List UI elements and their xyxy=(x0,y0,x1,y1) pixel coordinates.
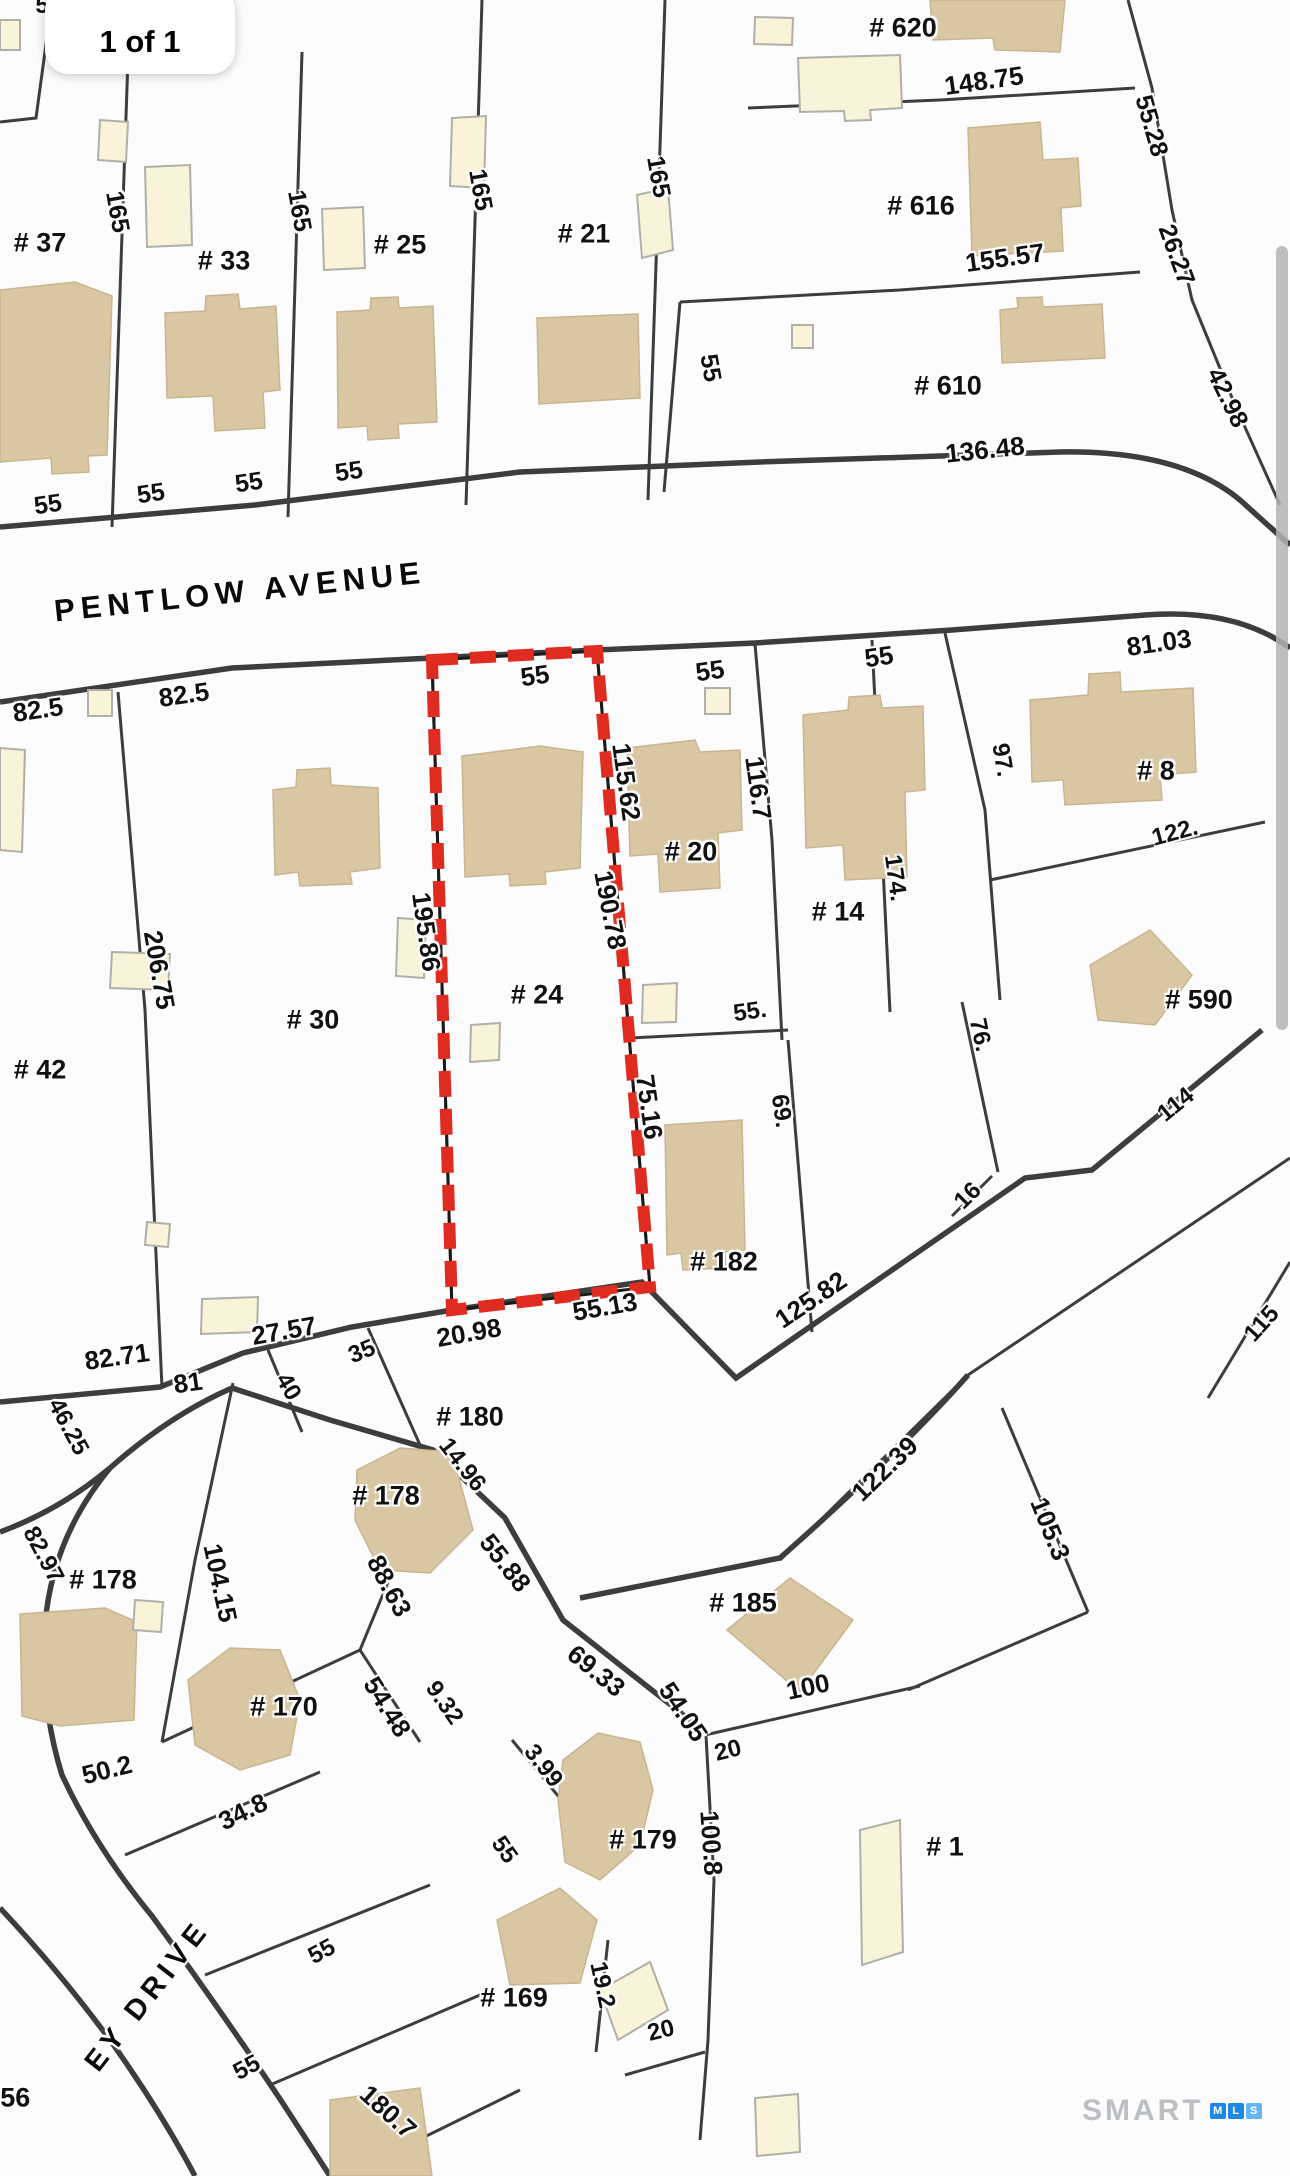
dimension-label: 55 xyxy=(233,467,265,500)
lot-number-label: # 182 xyxy=(690,1247,758,1278)
lot-number-label: # 24 xyxy=(511,980,564,1011)
lot-number-label: # 56 xyxy=(0,2083,30,2114)
lot-number-label: # 33 xyxy=(198,246,251,277)
lot-number-label: # 178 xyxy=(352,1481,420,1512)
lot-number-label: # 179 xyxy=(609,1825,677,1856)
mls-logo-letter: M xyxy=(1210,2103,1226,2119)
shed-footprints xyxy=(0,17,903,2156)
lot-number-label: # 616 xyxy=(887,191,955,222)
page-indicator-pill: 1 of 1 xyxy=(45,0,235,74)
lot-number-label: # 30 xyxy=(287,1005,340,1036)
dimension-label: 55 xyxy=(333,456,365,489)
lot-number-label: # 178 xyxy=(69,1565,137,1596)
lot-number-label: # 610 xyxy=(914,371,982,402)
mls-logo-letter: L xyxy=(1228,2103,1244,2119)
lot-number-label: # 42 xyxy=(14,1055,67,1086)
smart-mls-watermark: SMART MLS xyxy=(1082,2094,1262,2128)
dimension-label: 55 xyxy=(863,640,896,675)
lot-number-label: # 169 xyxy=(480,1983,548,2014)
lot-number-label: # 8 xyxy=(1137,756,1175,787)
dimension-label: 55 xyxy=(32,489,64,522)
dimension-label: 100.8 xyxy=(693,1809,728,1876)
dimension-label: 81 xyxy=(172,1366,205,1401)
lot-number-label: # 21 xyxy=(558,219,611,250)
lot-number-label: # 14 xyxy=(812,897,865,928)
smart-logo-text: SMART xyxy=(1082,2094,1204,2128)
dimension-label: 55 xyxy=(519,659,552,694)
dimension-label: 55. xyxy=(732,996,769,1028)
mls-logo-letter: S xyxy=(1246,2103,1262,2119)
page-indicator-text: 1 of 1 xyxy=(100,24,181,60)
lot-number-label: # 620 xyxy=(869,13,937,44)
mls-logo-blocks: MLS xyxy=(1210,2103,1262,2119)
scrollbar-thumb[interactable] xyxy=(1276,246,1288,1030)
lot-number-label: # 25 xyxy=(374,230,427,261)
lot-number-label: # 590 xyxy=(1165,985,1233,1016)
lot-number-label: # 185 xyxy=(709,1588,777,1619)
house-footprints xyxy=(0,0,1196,2176)
lot-number-label: # 20 xyxy=(665,837,718,868)
dimension-label: 55 xyxy=(135,478,167,511)
dimension-label: 69. xyxy=(765,1093,797,1130)
dimension-label: 55 xyxy=(694,654,727,689)
plat-map-viewer: PENTLOW AVENUEEY DRIVE# 37# 33# 25# 21# … xyxy=(0,0,1290,2176)
lot-number-label: # 1 xyxy=(926,1832,964,1863)
dimension-label: 55 xyxy=(693,352,726,384)
lot-number-label: # 37 xyxy=(14,228,67,259)
lot-number-label: # 180 xyxy=(436,1402,504,1433)
lot-number-label: # 170 xyxy=(250,1692,318,1723)
dimension-label: 97. xyxy=(985,741,1018,779)
